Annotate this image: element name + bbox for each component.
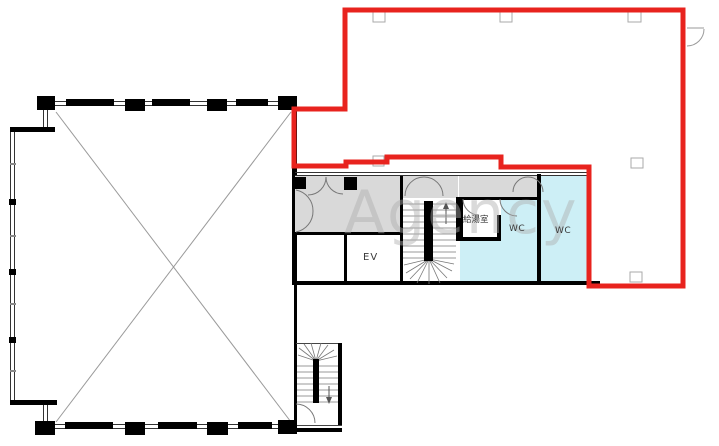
leased-area-outline xyxy=(294,10,683,286)
highlight-layer xyxy=(0,0,719,446)
floorplan-canvas: Agency EV 給湯室 WC WC xyxy=(0,0,719,446)
